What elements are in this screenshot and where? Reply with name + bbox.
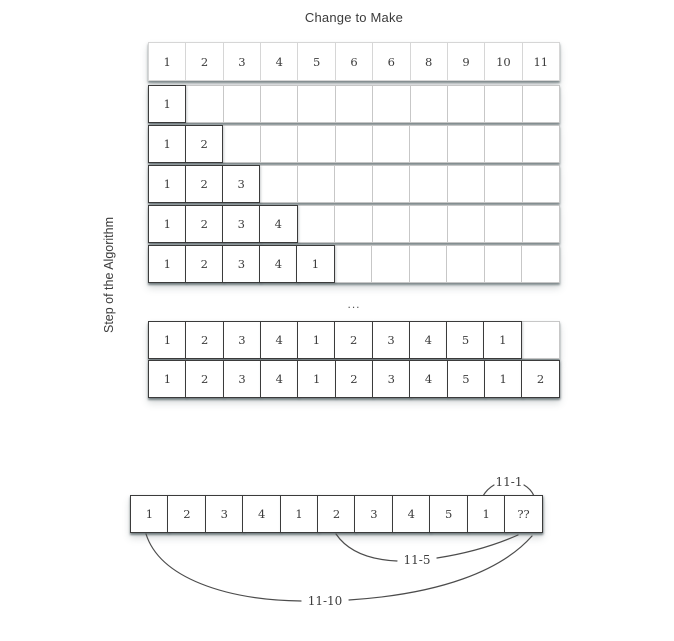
value-cell: 2: [185, 321, 224, 359]
value-cell: 1: [148, 85, 186, 123]
value-cell: 3: [223, 360, 262, 398]
value-cell: 2: [521, 360, 560, 398]
empty-cell: [522, 125, 560, 163]
empty-cell: [334, 245, 373, 283]
header-cell: 11: [522, 42, 560, 81]
value-cell: 1: [484, 360, 523, 398]
empty-cell: [521, 245, 560, 283]
step-row-5: 12341: [148, 245, 560, 283]
empty-cell: [185, 85, 223, 123]
value-cell: 2: [335, 360, 374, 398]
value-cell: 3: [222, 205, 261, 243]
value-cell: 3: [222, 245, 261, 283]
header-cell: 2: [185, 42, 223, 81]
value-cell: 4: [259, 205, 298, 243]
value-cell: 4: [259, 245, 298, 283]
empty-cell: [334, 205, 373, 243]
value-cell: 1: [148, 125, 186, 163]
value-cell: 5: [447, 360, 486, 398]
empty-cell: [372, 85, 410, 123]
value-cell: 3: [372, 360, 411, 398]
empty-cell: [335, 85, 373, 123]
value-cell: 2: [167, 495, 206, 533]
step-row-1: 1: [148, 85, 560, 123]
value-cell: 3: [205, 495, 244, 533]
empty-cell: [297, 125, 335, 163]
value-cell: 1: [297, 360, 336, 398]
x-axis-title: Change to Make: [148, 10, 560, 25]
arc-label-minus-ten: 11-10: [303, 594, 347, 608]
value-cell: 3: [372, 321, 411, 359]
value-cell: 2: [185, 165, 223, 203]
value-cell: 3: [223, 321, 262, 359]
empty-cell: [484, 165, 522, 203]
empty-cell: [447, 205, 486, 243]
value-cell: 2: [334, 321, 373, 359]
empty-cell: [409, 165, 447, 203]
value-cell: 1: [467, 495, 506, 533]
header-cell: 9: [447, 42, 485, 81]
value-cell: 1: [297, 321, 336, 359]
empty-cell: [522, 205, 561, 243]
value-cell: 4: [260, 321, 299, 359]
value-cell: 2: [185, 125, 223, 163]
arc-label-minus-five: 11-5: [399, 553, 435, 567]
empty-cell: [447, 165, 485, 203]
value-cell: 2: [185, 360, 224, 398]
empty-cell: [260, 85, 298, 123]
empty-cell: [409, 245, 448, 283]
coin-change-diagram: Change to Make Step of the Algorithm 123…: [0, 0, 674, 641]
arc-label-minus-one: 11-1: [491, 475, 527, 489]
empty-cell: [372, 205, 411, 243]
value-cell: 3: [222, 165, 260, 203]
empty-cell: [484, 205, 523, 243]
empty-cell: [522, 85, 560, 123]
empty-cell: [335, 125, 373, 163]
empty-cell: [521, 321, 560, 359]
value-cell: 4: [242, 495, 281, 533]
arc-minus-five-left: [336, 534, 397, 561]
step-row-2: 12: [148, 125, 560, 163]
empty-cell: [446, 245, 485, 283]
empty-cell: [297, 205, 336, 243]
value-cell: 1: [148, 165, 186, 203]
value-cell: 1: [296, 245, 335, 283]
empty-cell: [222, 125, 260, 163]
empty-cell: [372, 125, 410, 163]
arc-minus-ten-left: [146, 534, 301, 601]
step-row-10: 1234123451: [148, 321, 560, 359]
empty-cell: [484, 245, 523, 283]
header-cell: 6: [372, 42, 410, 81]
header-cell: 3: [223, 42, 261, 81]
empty-cell: [447, 125, 485, 163]
header-cell: 1: [148, 42, 186, 81]
value-cell: 4: [260, 360, 299, 398]
value-cell: 1: [148, 360, 187, 398]
step-row-11: 12341234512: [148, 360, 560, 398]
final-step-row: 1234123451??: [130, 495, 543, 533]
header-cell: 6: [335, 42, 373, 81]
empty-cell: [447, 85, 485, 123]
empty-cell: [484, 85, 522, 123]
step-row-3: 123: [148, 165, 560, 203]
header-cell: 10: [484, 42, 522, 81]
value-cell: 2: [317, 495, 356, 533]
header-cell: 8: [410, 42, 448, 81]
empty-cell: [409, 205, 448, 243]
empty-cell: [409, 125, 447, 163]
empty-cell: [522, 165, 560, 203]
value-cell: 4: [409, 321, 448, 359]
empty-cell: [259, 165, 297, 203]
value-cell: 3: [354, 495, 393, 533]
value-cell: 2: [185, 245, 224, 283]
empty-cell: [297, 85, 335, 123]
step-row-4: 1234: [148, 205, 560, 243]
value-cell: 4: [392, 495, 431, 533]
empty-cell: [297, 165, 335, 203]
value-cell: 1: [148, 205, 187, 243]
empty-cell: [484, 125, 522, 163]
value-cell: 4: [409, 360, 448, 398]
empty-cell: [334, 165, 372, 203]
value-cell: 1: [148, 245, 187, 283]
value-cell: 2: [185, 205, 224, 243]
arc-minus-five-right: [437, 535, 518, 558]
header-cell: 4: [260, 42, 298, 81]
value-cell: ??: [504, 495, 543, 533]
steps-ellipsis: ...: [148, 297, 560, 311]
y-axis-title: Step of the Algorithm: [102, 217, 116, 333]
value-cell: 1: [148, 321, 187, 359]
change-amount-header-row: 1234566891011: [148, 42, 560, 81]
empty-cell: [223, 85, 261, 123]
arc-minus-ten-right: [349, 536, 532, 600]
value-cell: 1: [483, 321, 522, 359]
value-cell: 1: [130, 495, 169, 533]
empty-cell: [372, 165, 410, 203]
empty-cell: [371, 245, 410, 283]
value-cell: 5: [446, 321, 485, 359]
header-cell: 5: [297, 42, 335, 81]
value-cell: 5: [429, 495, 468, 533]
empty-cell: [260, 125, 298, 163]
value-cell: 1: [280, 495, 319, 533]
empty-cell: [410, 85, 448, 123]
